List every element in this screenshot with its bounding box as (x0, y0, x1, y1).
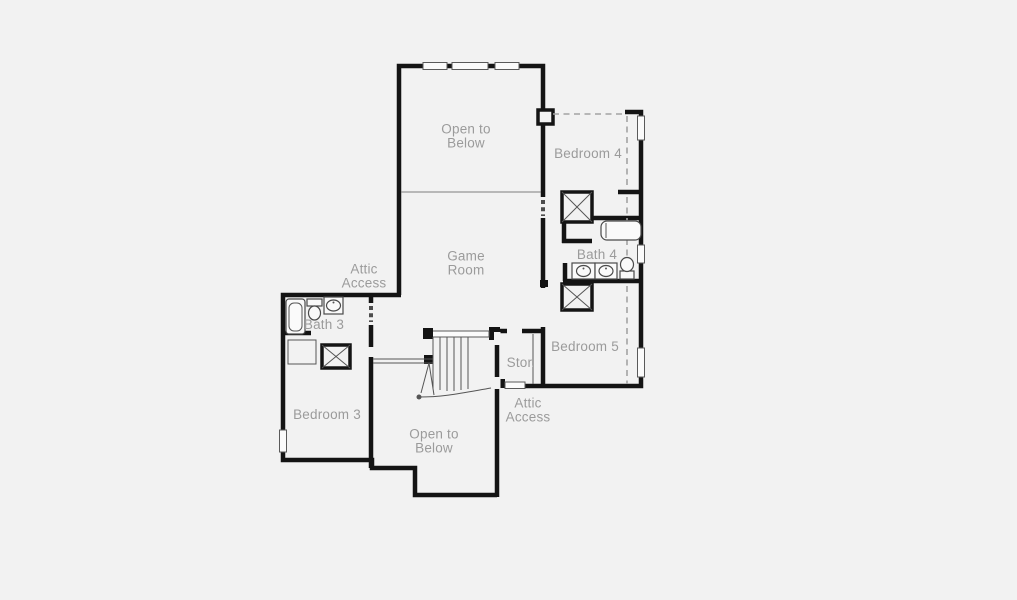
room-label-open-to-below-top: Open to Below (441, 123, 490, 152)
window (638, 116, 645, 140)
room-label-attic-access-right: Attic Access (506, 397, 551, 426)
floor-plan-canvas (0, 0, 1017, 600)
window (495, 63, 519, 70)
room-label-attic-access-left: Attic Access (342, 263, 387, 292)
toilet-icon (620, 258, 634, 280)
floor-plan: Open to Below Bedroom 4 Game Room Bath 4… (0, 0, 1017, 600)
sink-icon (324, 297, 343, 314)
window (638, 348, 645, 377)
room-label-bath-4: Bath 4 (577, 248, 617, 262)
room-label-open-to-below-bottom: Open to Below (409, 428, 458, 457)
bathtub-icon (286, 299, 305, 334)
stairs (373, 328, 491, 400)
room-label-game-room: Game Room (447, 250, 485, 279)
bathtub-icon (601, 221, 641, 240)
column-notch (538, 110, 553, 124)
window (638, 245, 645, 263)
sink-icon (595, 263, 617, 279)
sink-icon (572, 263, 595, 279)
room-label-storage: Stor. (507, 356, 536, 370)
room-label-bedroom-3: Bedroom 3 (293, 408, 361, 422)
room-label-bath-3: Bath 3 (304, 318, 344, 332)
room-label-bedroom-4: Bedroom 4 (554, 147, 622, 161)
room-label-bedroom-5: Bedroom 5 (551, 340, 619, 354)
window (280, 430, 287, 452)
window (423, 63, 447, 70)
window (452, 63, 488, 70)
attic-access-hatch (505, 382, 525, 389)
shower-icon (288, 340, 316, 364)
